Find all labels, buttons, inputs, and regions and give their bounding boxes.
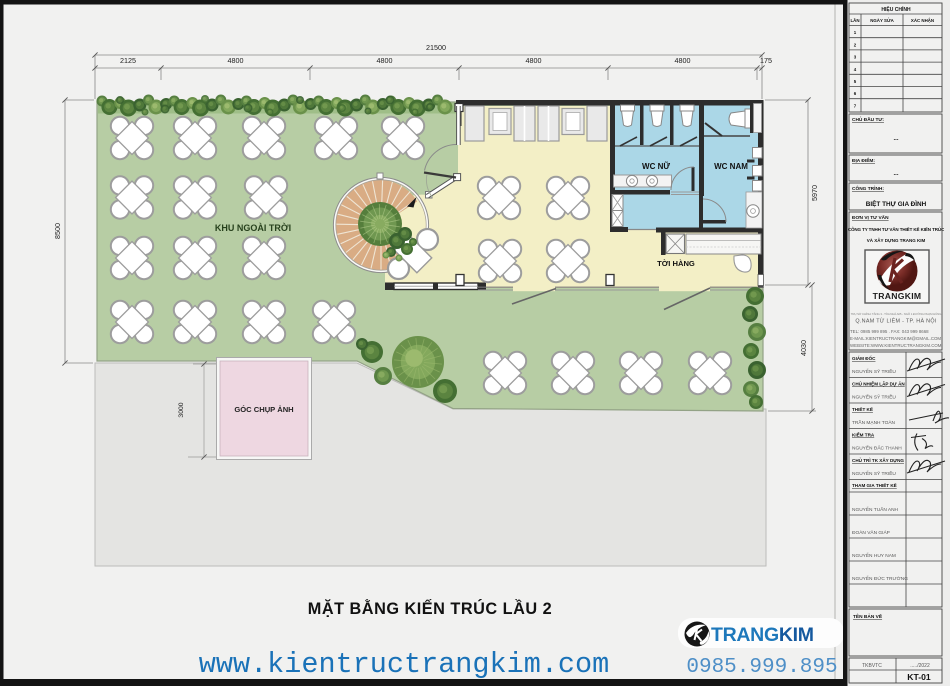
svg-text:...: ...	[893, 136, 898, 142]
svg-text:GIÁM ĐỐC: GIÁM ĐỐC	[852, 355, 876, 361]
svg-text:CÔNG TY TNHH TƯ VẤN THIẾT KẾ K: CÔNG TY TNHH TƯ VẤN THIẾT KẾ KIẾN TRÚC	[848, 225, 945, 232]
svg-text:TRANGKIM: TRANGKIM	[711, 624, 814, 646]
svg-text:NGUYỄN ĐỨC TRƯỜNG: NGUYỄN ĐỨC TRƯỜNG	[852, 575, 908, 582]
svg-text:ĐOÀN VĂN GIÁP: ĐOÀN VĂN GIÁP	[852, 529, 890, 536]
svg-text:ĐỊA ĐIỂM:: ĐỊA ĐIỂM:	[852, 157, 875, 164]
svg-text:TRỤ SỞ CHÍNH: TẦNG 3 - TÒA NHÀ: TRỤ SỞ CHÍNH: TẦNG 3 - TÒA NHÀ A05 - NGÕ…	[851, 311, 942, 316]
svg-text:175: 175	[760, 56, 772, 65]
svg-text:THAM GIA THIẾT KẾ: THAM GIA THIẾT KẾ	[852, 482, 897, 488]
svg-text:...: ...	[893, 171, 898, 177]
svg-text:TRẦN MẠNH TOÀN: TRẦN MẠNH TOÀN	[852, 419, 896, 426]
svg-text:NGUYỄN TUẤN ANH: NGUYỄN TUẤN ANH	[852, 506, 899, 513]
svg-text:www.kientructrangkim.com: www.kientructrangkim.com	[199, 648, 609, 681]
svg-text:...../2022: ...../2022	[910, 663, 930, 669]
svg-text:KT-01: KT-01	[907, 672, 931, 682]
svg-text:WC NỮ: WC NỮ	[642, 162, 670, 171]
svg-text:4030: 4030	[799, 340, 808, 356]
svg-text:2125: 2125	[120, 56, 136, 65]
svg-text:VÀ XÂY DỰNG TRANG KIM: VÀ XÂY DỰNG TRANG KIM	[867, 237, 926, 243]
svg-text:CHỦ TRÌ TK XÂY DỰNG: CHỦ TRÌ TK XÂY DỰNG	[852, 456, 904, 463]
svg-text:CHỦ NHIỆM LẬP DỰ ÁN: CHỦ NHIỆM LẬP DỰ ÁN	[852, 380, 905, 387]
svg-text:XÁC NHẬN: XÁC NHẬN	[911, 18, 934, 23]
svg-text:4800: 4800	[377, 56, 393, 65]
svg-text:NGUYỄN SỸ TRIỀU: NGUYỄN SỸ TRIỀU	[852, 470, 896, 477]
svg-text:KIỂM TRA: KIỂM TRA	[852, 432, 875, 438]
svg-text:LẦN: LẦN	[850, 18, 859, 23]
svg-text:TEL: 0985 999 895 . FAX: 043 9: TEL: 0985 999 895 . FAX: 043 999 8668	[850, 329, 929, 334]
svg-text:5970: 5970	[810, 185, 819, 201]
svg-text:MẶT BẰNG KIẾN TRÚC LẦU 2: MẶT BẰNG KIẾN TRÚC LẦU 2	[308, 599, 552, 618]
svg-text:HIỆU CHỈNH: HIỆU CHỈNH	[881, 5, 911, 13]
svg-text:NGUYỄN SỸ TRIỀU: NGUYỄN SỸ TRIỀU	[852, 394, 896, 401]
svg-text:WC NAM: WC NAM	[714, 162, 748, 171]
svg-text:WEBSITE:WWW.KIENTRUCTRANGKIM.C: WEBSITE:WWW.KIENTRUCTRANGKIM.COM	[850, 343, 942, 348]
svg-text:NGUYỄN SỸ TRIỀU: NGUYỄN SỸ TRIỀU	[852, 368, 896, 375]
svg-text:GÓC CHỤP ẢNH: GÓC CHỤP ẢNH	[234, 405, 293, 414]
svg-text:3000: 3000	[178, 402, 185, 417]
svg-text:E-MAIL:KIENTRUCTRANGKIM@GMAIL.: E-MAIL:KIENTRUCTRANGKIM@GMAIL.COM	[850, 336, 941, 341]
svg-text:4800: 4800	[675, 56, 691, 65]
svg-text:NGUYỄN HUY NAM: NGUYỄN HUY NAM	[852, 552, 896, 559]
svg-text:4800: 4800	[228, 56, 244, 65]
svg-text:KHU NGOÀI TRỜI: KHU NGOÀI TRỜI	[215, 222, 291, 233]
svg-text:8500: 8500	[53, 223, 62, 239]
svg-text:BIỆT THỰ GIA ĐÌNH: BIỆT THỰ GIA ĐÌNH	[866, 199, 927, 208]
svg-text:0985.999.895: 0985.999.895	[686, 656, 837, 679]
svg-text:TỜI HÀNG: TỜI HÀNG	[657, 259, 695, 268]
svg-text:TRANGKIM: TRANGKIM	[873, 291, 922, 301]
svg-text:TKBVTC: TKBVTC	[862, 663, 882, 669]
svg-text:NGÀY SỬA: NGÀY SỬA	[870, 18, 894, 23]
svg-text:Q.NAM TỪ LIÊM - TP. HÀ NỘI: Q.NAM TỪ LIÊM - TP. HÀ NỘI	[855, 317, 936, 325]
svg-text:CHỦ ĐẦU TƯ:: CHỦ ĐẦU TƯ:	[852, 116, 884, 123]
svg-text:21500: 21500	[426, 43, 446, 52]
svg-text:ĐƠN VỊ TƯ VẤN: ĐƠN VỊ TƯ VẤN	[852, 214, 889, 221]
svg-text:4800: 4800	[526, 56, 542, 65]
svg-text:THIẾT KẾ: THIẾT KẾ	[852, 406, 873, 412]
